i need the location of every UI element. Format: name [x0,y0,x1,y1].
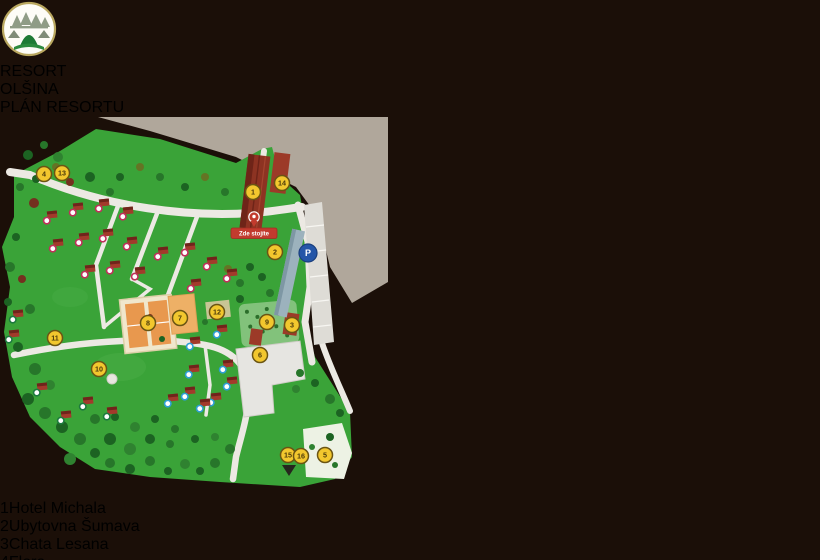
tree-icon [124,443,136,455]
tree-icon [22,393,34,405]
svg-text:3: 3 [290,321,294,330]
tree-icon [246,263,254,271]
tree-icon [266,289,274,297]
map-marker-6: 6 [253,348,268,363]
map-legend: 1Hotel Michala2Ubytovna Šumava3Chata Les… [0,500,820,560]
tree-icon [196,467,204,475]
svg-text:4: 4 [42,170,46,179]
tree-icon [39,407,51,419]
map-marker-16: 16 [294,449,309,464]
tree-icon [159,336,165,342]
map-marker-parking: P [299,244,317,262]
tree-icon [74,433,86,445]
map-marker-10: 10 [92,362,107,377]
legend-item-2: 2Ubytovna Šumava [0,518,820,536]
number-badge-icon: 1 [0,500,9,517]
red-roof-building-small [249,328,263,346]
tree-icon [236,295,244,303]
tree-icon [156,173,164,181]
tree-icon [164,467,172,475]
tree-icon [210,458,220,468]
tree-icon [326,433,334,441]
tree-icon [116,173,124,181]
map-marker-9: 9 [260,315,275,330]
tree-icon [292,385,300,393]
tree-icon [85,172,95,182]
legend-item-label: Flora [9,554,45,560]
svg-text:5: 5 [323,451,327,460]
tree-icon [211,433,219,441]
tree-icon [191,435,199,443]
tree-icon [64,453,76,465]
tree-icon [221,188,229,196]
svg-text:14: 14 [278,179,286,188]
tree-icon [180,459,190,469]
tree-icon [296,369,304,377]
tree-icon [5,262,15,272]
svg-text:6: 6 [258,351,262,360]
tree-icon [104,433,116,445]
tree-icon [166,440,174,448]
tree-icon [332,462,338,468]
number-badge-icon: 2 [0,518,9,535]
map-marker-12: 12 [210,305,225,320]
svg-text:8: 8 [146,319,150,328]
tree-icon [90,414,100,424]
number-badge-icon: 3 [0,536,9,553]
tree-icon [29,363,41,375]
map-marker-13: 13 [55,166,70,181]
photo-of-resort-map-sign: RESORT OLŠINA PLÁN RESORTU [0,0,820,560]
tree-icon [225,444,235,454]
tree-icon [181,183,189,191]
map-marker-3: 3 [285,318,300,333]
tree-icon [4,298,12,306]
svg-text:1: 1 [251,188,255,197]
tree-icon [336,409,344,417]
resort-map-sign-board: RESORT OLŠINA PLÁN RESORTU [0,0,820,560]
tree-icon [171,425,179,433]
svg-text:11: 11 [51,334,59,343]
tree-icon [130,422,140,432]
legend-item-label: Chata Lesana [9,536,109,553]
tree-icon [236,279,244,287]
tree-icon [145,456,155,466]
svg-text:15: 15 [284,451,292,460]
tree-icon [258,273,266,281]
map-marker-8: 8 [141,316,156,331]
legend-item-1: 1Hotel Michala [0,500,820,518]
logo-resort-word: RESORT [0,63,820,81]
tree-icon [12,233,20,241]
map-marker-2: 2 [268,245,283,260]
tree-icon [202,319,208,325]
svg-text:2: 2 [273,248,277,257]
tree-icon [311,379,319,387]
tree-icon [106,188,114,196]
tree-icon [145,434,155,444]
fire-pit [107,374,117,384]
tree-icon [40,141,48,149]
tree-icon [325,394,335,404]
legend-item-3: 3Chata Lesana [0,536,820,554]
tree-icon [201,173,209,181]
svg-text:16: 16 [297,452,305,461]
tree-icon [105,458,115,468]
resort-logo-emblem-icon [0,0,58,58]
you-are-here-label: Zde stojíte [239,232,270,238]
tree-icon [90,448,100,458]
tree-icon [25,304,35,314]
tree-icon [16,183,24,191]
svg-text:13: 13 [58,169,66,178]
resort-map: 12345678910111213141516P Zde stojíte [0,117,388,495]
page-title: PLÁN RESORTU [0,99,820,117]
resort-logo: RESORT OLŠINA [0,0,820,99]
map-marker-5: 5 [318,448,333,463]
tree-icon [29,198,39,208]
legend-item-label: Ubytovna Šumava [9,518,140,535]
tree-icon [136,163,144,171]
legend-item-4: 4Flora [0,554,820,560]
tree-icon [18,275,26,283]
svg-text:9: 9 [265,318,269,327]
svg-text:7: 7 [178,314,182,323]
tree-icon [23,150,33,160]
logo-olsina-word: OLŠINA [0,81,820,99]
tree-icon [309,444,315,450]
legend-item-label: Hotel Michala [9,500,106,517]
tree-icon [53,152,63,162]
map-marker-14: 14 [275,176,290,191]
svg-text:P: P [305,248,311,258]
tree-icon [125,464,135,474]
svg-text:12: 12 [213,308,221,317]
tree-icon [13,342,23,352]
number-badge-icon: 4 [0,554,9,560]
map-marker-4: 4 [37,167,52,182]
map-marker-1: 1 [246,185,261,200]
map-marker-7: 7 [173,311,188,326]
map-marker-11: 11 [48,331,63,346]
svg-text:10: 10 [95,365,103,374]
tree-icon [111,413,119,421]
tree-icon [151,415,159,423]
